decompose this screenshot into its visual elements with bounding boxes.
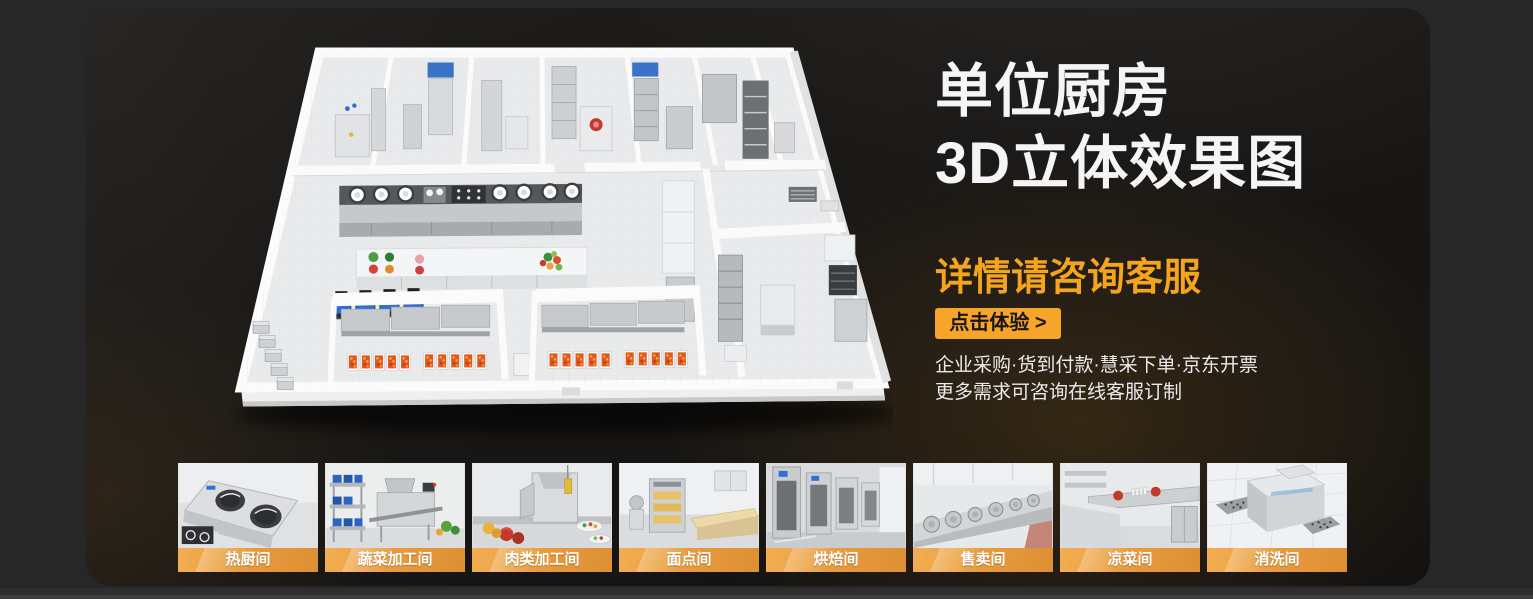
thumbnail-label: 面点间 [619,548,759,572]
thumbnail-label: 烘焙间 [766,548,906,572]
page-bottom-strip [0,588,1533,599]
hero-card: 单位厨房 3D立体效果图 详情请咨询客服 点击体验 > 企业采购·货到付款·慧采… [85,8,1430,586]
thumbnail-hot-kitchen[interactable]: 热厨间 [178,463,318,572]
pastry-room-photo [619,463,759,548]
banner-canvas: 单位厨房 3D立体效果图 详情请咨询客服 点击体验 > 企业采购·货到付款·慧采… [0,0,1533,599]
cold-dish-room-photo [1060,463,1200,548]
thumbnail-meat-processing[interactable]: 肉类加工间 [472,463,612,572]
page-title: 单位厨房 3D立体效果图 [935,56,1306,200]
thumbnail-pastry-room[interactable]: 面点间 [619,463,759,572]
thumbnail-vegetable-processing[interactable]: 蔬菜加工间 [325,463,465,572]
thumbnail-label: 热厨间 [178,548,318,572]
thumbnail-serving-room[interactable]: 售卖间 [913,463,1053,572]
thumbnail-label: 蔬菜加工间 [325,548,465,572]
subtitle: 详情请咨询客服 [935,246,1201,301]
thumbnail-label: 消洗间 [1207,548,1347,572]
vegetable-processing-photo [325,463,465,548]
thumbnail-baking-room[interactable]: 烘焙间 [766,463,906,572]
room-thumbnails-row: 热厨间 蔬菜加工间 [178,463,1347,572]
thumbnail-washing-room[interactable]: 消洗间 [1207,463,1347,572]
thumbnail-label: 售卖间 [913,548,1053,572]
hot-kitchen-photo [178,463,318,548]
meat-processing-photo [472,463,612,548]
serving-room-photo [913,463,1053,548]
thumbnail-label: 肉类加工间 [472,548,612,572]
washing-room-photo [1207,463,1347,548]
cta-button[interactable]: 点击体验 > [935,308,1061,339]
title-line-1: 单位厨房 [935,56,1306,128]
baking-room-photo [766,463,906,548]
thumbnail-label: 凉菜间 [1060,548,1200,572]
thumbnail-cold-dish-room[interactable]: 凉菜间 [1060,463,1200,572]
service-bullets-line-1: 企业采购·货到付款·慧采下单·京东开票 [935,352,1258,379]
service-bullets-line-2: 更多需求可咨询在线客服订制 [935,379,1258,406]
service-bullets: 企业采购·货到付款·慧采下单·京东开票 更多需求可咨询在线客服订制 [935,352,1258,406]
title-line-2: 3D立体效果图 [935,128,1306,200]
kitchen-floorplan-3d-render [231,22,893,442]
